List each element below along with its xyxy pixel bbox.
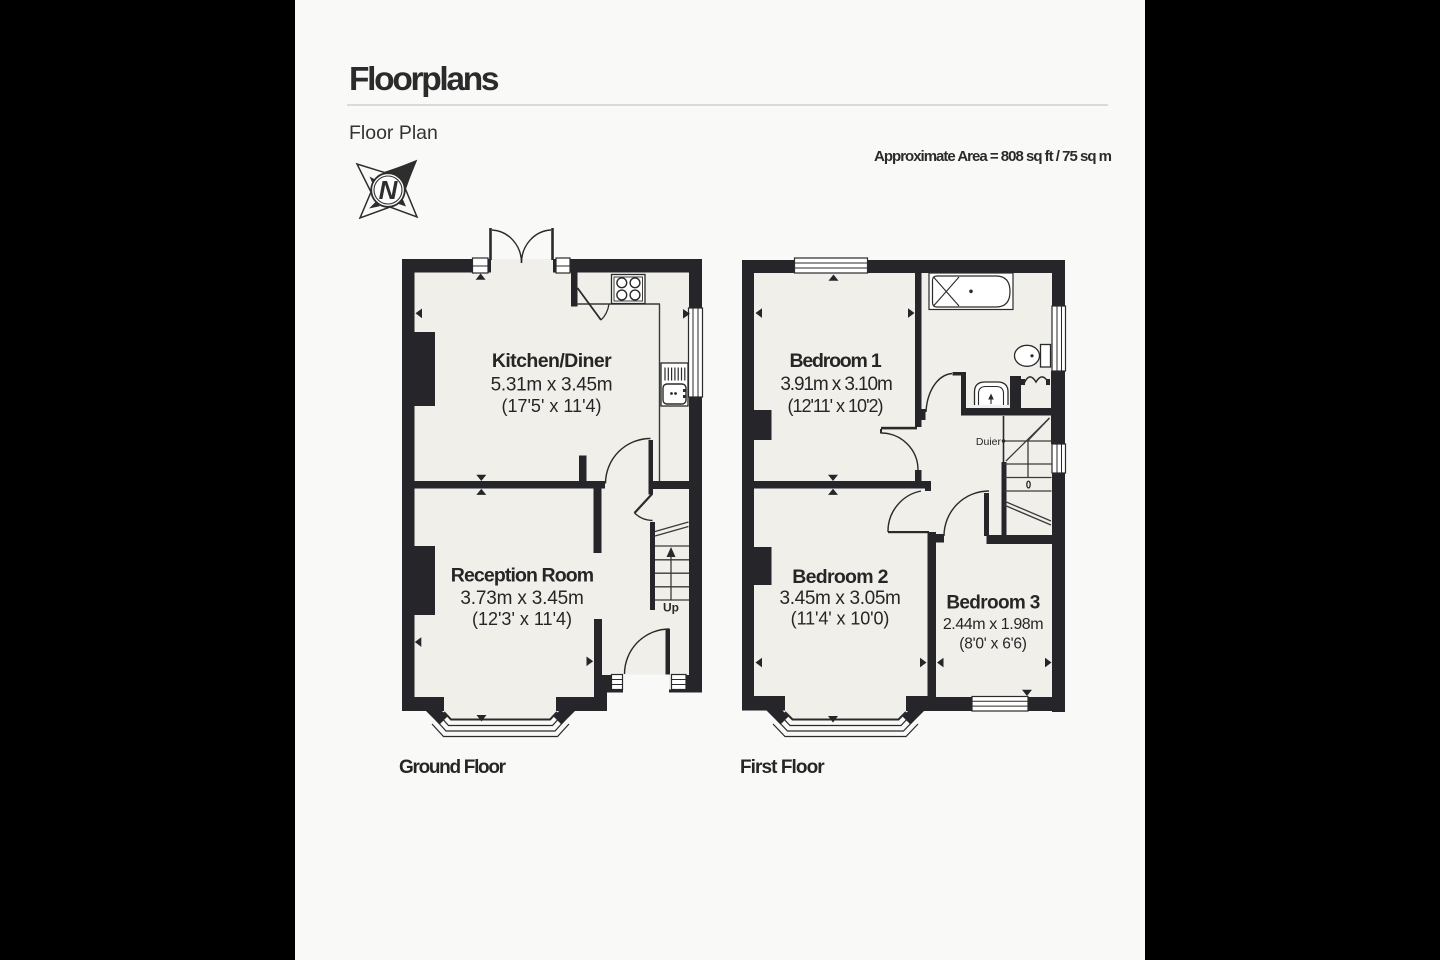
svg-text:(12'3' x 11'4): (12'3' x 11'4) <box>472 609 572 629</box>
svg-text:Ground Floor: Ground Floor <box>399 757 507 778</box>
svg-text:Up: Up <box>663 601 679 615</box>
svg-text:3.91m x 3.10m: 3.91m x 3.10m <box>780 374 892 395</box>
svg-text:Approximate Area = 808 sq ft /: Approximate Area = 808 sq ft / 75 sq m <box>874 148 1112 165</box>
svg-text:2.44m x 1.98m: 2.44m x 1.98m <box>943 616 1043 633</box>
svg-text:Floor Plan: Floor Plan <box>349 122 438 144</box>
svg-text:Bedroom 1: Bedroom 1 <box>789 350 881 372</box>
svg-text:3.45m x 3.05m: 3.45m x 3.05m <box>780 588 901 609</box>
svg-text:(17'5' x 11'4): (17'5' x 11'4) <box>501 396 601 416</box>
svg-text:5.31m x 3.45m: 5.31m x 3.45m <box>491 375 613 396</box>
svg-text:(12'11' x 10'2): (12'11' x 10'2) <box>787 396 882 416</box>
svg-text:Bedroom 3: Bedroom 3 <box>946 593 1039 614</box>
svg-text:Kitchen/Diner: Kitchen/Diner <box>492 350 612 372</box>
svg-text:N: N <box>379 175 399 205</box>
svg-text:3.73m x 3.45m: 3.73m x 3.45m <box>460 588 583 609</box>
svg-text:First Floor: First Floor <box>740 757 825 778</box>
svg-text:(8'0' x 6'6): (8'0' x 6'6) <box>959 636 1026 653</box>
svg-text:Reception Room: Reception Room <box>451 565 594 587</box>
svg-text:Duier: Duier <box>976 436 1002 448</box>
svg-text:Floorplans: Floorplans <box>349 61 499 98</box>
svg-text:(11'4' x 10'0): (11'4' x 10'0) <box>791 609 890 629</box>
svg-text:Bedroom 2: Bedroom 2 <box>792 566 888 588</box>
